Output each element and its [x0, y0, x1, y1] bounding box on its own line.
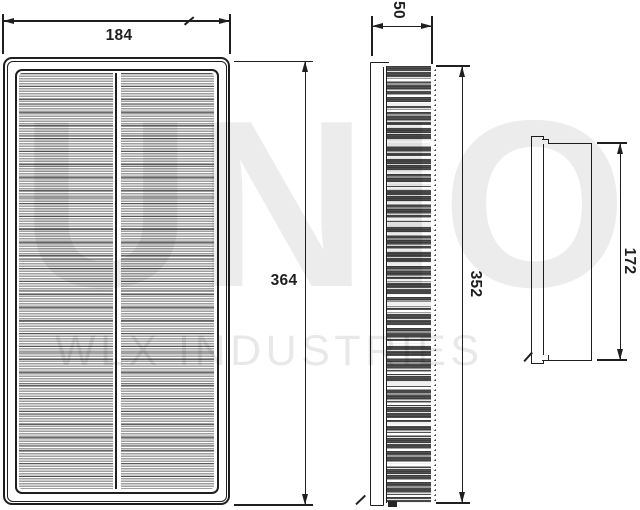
dim-50-ext-line-left	[371, 16, 373, 56]
dim-364-ext-line-top	[234, 61, 313, 63]
dim-172-label: 172	[614, 246, 640, 276]
end-view-body	[543, 143, 592, 361]
dim-352-arrow-bottom	[459, 492, 465, 503]
side-view-bottom-lip-tick	[355, 495, 365, 505]
air-filter-technical-drawing: 184 364 50 352 172 UNIO WLX INDUSTRIES	[0, 0, 640, 510]
front-view-frame-inner-line	[7, 61, 227, 502]
front-view-center-divider	[113, 73, 121, 489]
dim-364-arrow-bottom	[302, 494, 308, 505]
end-view-bottom-step	[542, 355, 549, 361]
side-view-frame-flange	[370, 62, 384, 506]
dim-50-arrow-right	[421, 23, 432, 29]
dim-172-arrow-top	[617, 143, 623, 154]
side-view-bottom-foot	[388, 501, 397, 507]
end-view-frame-flange	[531, 136, 544, 364]
dim-50-arrow-left	[372, 23, 383, 29]
dim-50-label: 50	[386, 0, 410, 22]
dim-184-arrow-right	[219, 18, 230, 24]
dim-184-label: 184	[89, 27, 149, 45]
dim-364-ext-line-bottom	[234, 504, 313, 506]
dim-184-line	[3, 20, 230, 22]
front-view-pleated-media	[19, 73, 214, 489]
dim-364-arrow-top	[302, 61, 308, 72]
dim-184-arrow-left	[3, 18, 14, 24]
end-view-top-step	[542, 139, 549, 145]
front-view-outer-frame	[3, 57, 230, 505]
front-view-media-panel	[15, 69, 219, 494]
dim-352-label: 352	[460, 269, 490, 299]
dim-352-arrow-top	[459, 66, 465, 77]
front-view-center-divider-line	[115, 73, 117, 489]
side-view-pleated-media-block	[386, 66, 431, 503]
dim-172-arrow-bottom	[617, 349, 623, 360]
dim-364-label: 364	[254, 272, 314, 290]
side-view-pleat-teeth-edge	[431, 66, 436, 503]
